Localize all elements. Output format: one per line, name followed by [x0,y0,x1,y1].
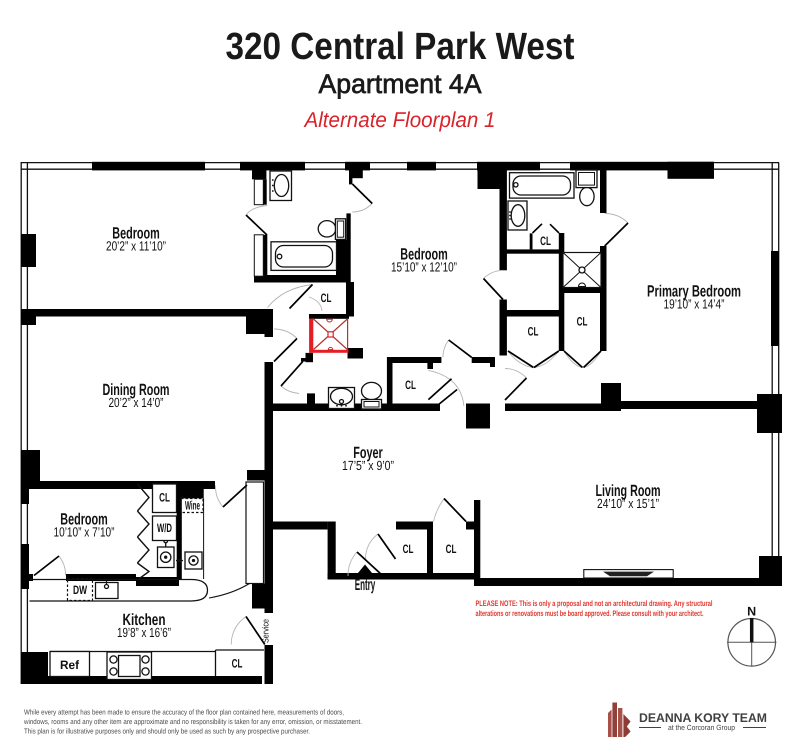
svg-text:CL: CL [321,291,332,305]
svg-text:CL: CL [159,491,170,505]
svg-text:20’2” x 14’0”: 20’2” x 14’0” [109,395,164,410]
svg-text:N: N [747,605,756,619]
svg-text:CL: CL [446,542,457,556]
svg-text:W/D: W/D [157,521,172,535]
svg-text:Apartment 4A: Apartment 4A [319,69,482,99]
svg-text:This plan is for illustrative: This plan is for illustrative purposes o… [24,727,310,736]
svg-text:15’10” x 12’10”: 15’10” x 12’10” [391,260,457,275]
svg-text:CL: CL [577,315,588,329]
svg-text:DW: DW [73,583,87,597]
svg-text:CL: CL [405,378,416,392]
svg-text:17’5” x 9’0”: 17’5” x 9’0” [342,458,394,473]
svg-text:CL: CL [232,657,243,671]
svg-text:24’10” x 15’1”: 24’10” x 15’1” [597,496,659,511]
svg-text:Ref: Ref [60,658,80,672]
svg-text:CL: CL [540,234,551,248]
svg-text:Wine: Wine [185,499,200,513]
svg-text:Entry: Entry [355,576,376,594]
svg-text:Service: Service [260,619,270,643]
svg-text:19’8” x 16’6”: 19’8” x 16’6” [117,625,171,640]
svg-text:CL: CL [528,325,539,339]
svg-text:windows, rooms and any other i: windows, rooms and any other item are ap… [23,717,362,726]
svg-text:at the Corcoran Group: at the Corcoran Group [668,723,735,732]
svg-text:10’10” x 7’10”: 10’10” x 7’10” [54,525,115,540]
svg-text:19’10” x 14’4”: 19’10” x 14’4” [664,297,725,312]
svg-text:320 Central Park West: 320 Central Park West [226,26,575,68]
svg-text:PLEASE NOTE: This is only a pr: PLEASE NOTE: This is only a proposal and… [476,599,713,608]
svg-text:CL: CL [403,542,414,556]
svg-text:alterations or renovations mus: alterations or renovations must be board… [476,609,704,618]
svg-text:20’2” x 11’10”: 20’2” x 11’10” [106,239,166,254]
svg-text:While every attempt has been m: While every attempt has been made to ens… [24,708,344,717]
svg-text:Alternate Floorplan 1: Alternate Floorplan 1 [303,108,496,132]
